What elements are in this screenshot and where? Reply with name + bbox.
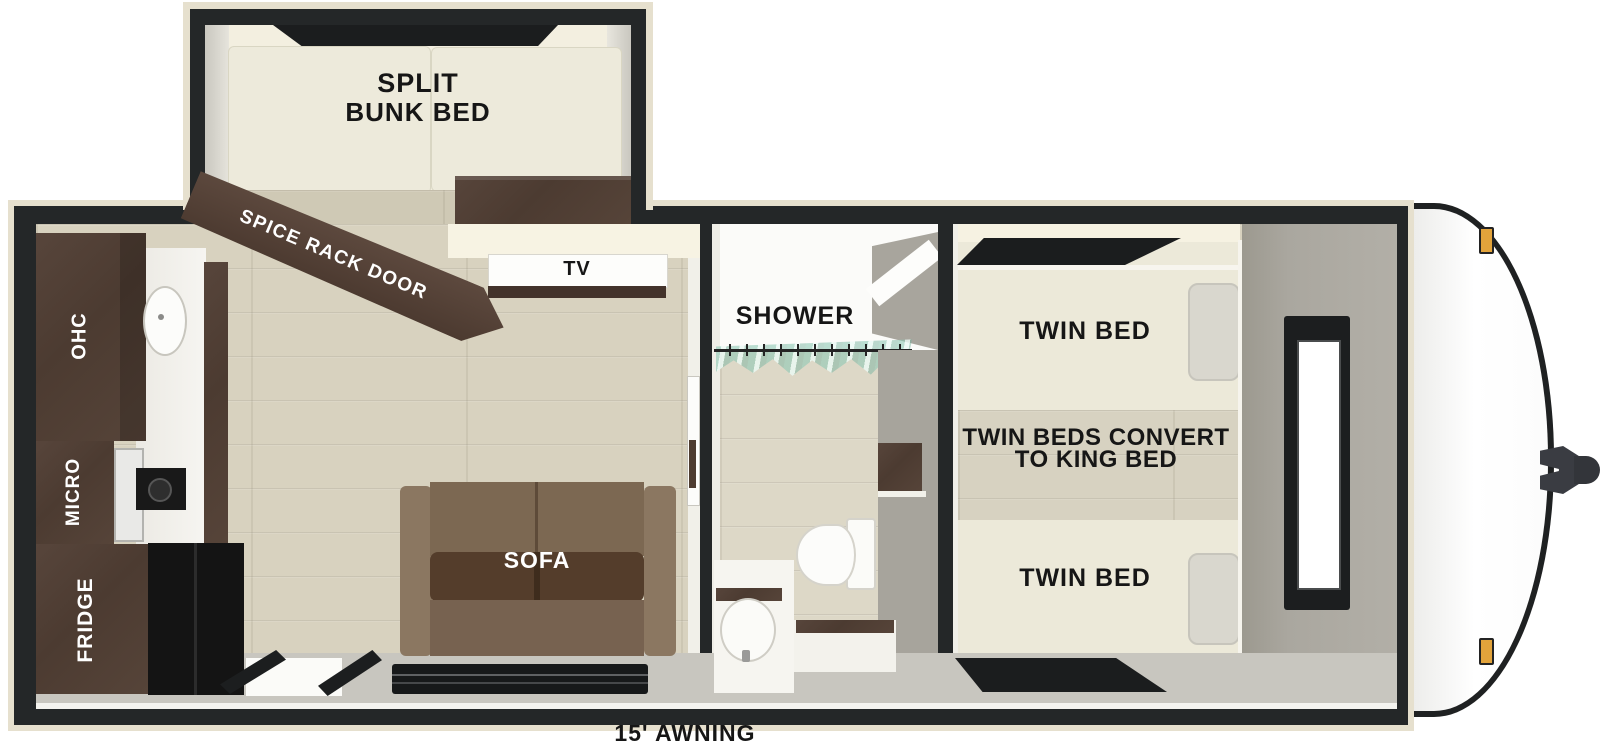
bath-faucet-icon — [742, 650, 750, 662]
pocket-door-handle — [689, 440, 696, 488]
vanity-counter-ext-edge — [796, 620, 894, 633]
sofa-back — [430, 482, 644, 556]
tv-label: TV — [488, 258, 666, 281]
kitchen-sink — [143, 286, 187, 356]
sofa-label: SOFA — [462, 547, 612, 574]
shower-label: SHOWER — [715, 302, 875, 331]
twin-bed-bottom-label: TWIN BED — [965, 564, 1205, 593]
toilet-bowl — [796, 524, 856, 586]
range-oven — [148, 543, 244, 695]
marker-light-icon — [1479, 227, 1494, 254]
fridge-label: FRIDGE — [74, 577, 98, 662]
sofa-arm-right — [644, 486, 676, 656]
marker-light-icon — [1479, 638, 1494, 665]
sofa-arm-left — [400, 486, 432, 656]
tv-ceiling-band — [448, 224, 700, 258]
cooktop-burner-icon — [148, 478, 172, 502]
bath-cabinet-ledge — [878, 491, 926, 497]
ohc-label: OHC — [69, 312, 92, 359]
hitch-bar — [1574, 456, 1600, 484]
kitchen-faucet-icon — [158, 314, 164, 320]
vent-trim-line — [958, 265, 1240, 270]
bottom-wall-trim-line — [36, 703, 1397, 709]
bunk-label-line1: SPLIT — [263, 68, 573, 99]
micro-label: MICRO — [63, 458, 85, 526]
sofa-front — [430, 600, 644, 656]
kitchen-counter-edge — [204, 262, 228, 544]
twin-convert-label-line2: TO KING BED — [955, 446, 1237, 474]
bath-cabinet-inset — [878, 443, 922, 491]
floorplan-canvas: OHC MICRO FRIDGE SOFA SHOWER — [0, 0, 1600, 742]
bunk-label-line2: BUNK BED — [263, 97, 573, 128]
bedroom-window-glass — [1297, 340, 1341, 590]
awning-label: 15' AWNING — [550, 720, 820, 742]
living-bath-wall — [700, 224, 712, 653]
sofa-window — [392, 664, 648, 694]
tv-cabinet — [488, 286, 666, 298]
bath-wall-gray — [878, 350, 938, 653]
twin-bed-top-label: TWIN BED — [965, 317, 1205, 346]
bath-bedroom-wall — [938, 224, 953, 653]
bunk-storage-ledge — [455, 176, 631, 224]
bunk-roof-vent — [273, 25, 558, 46]
